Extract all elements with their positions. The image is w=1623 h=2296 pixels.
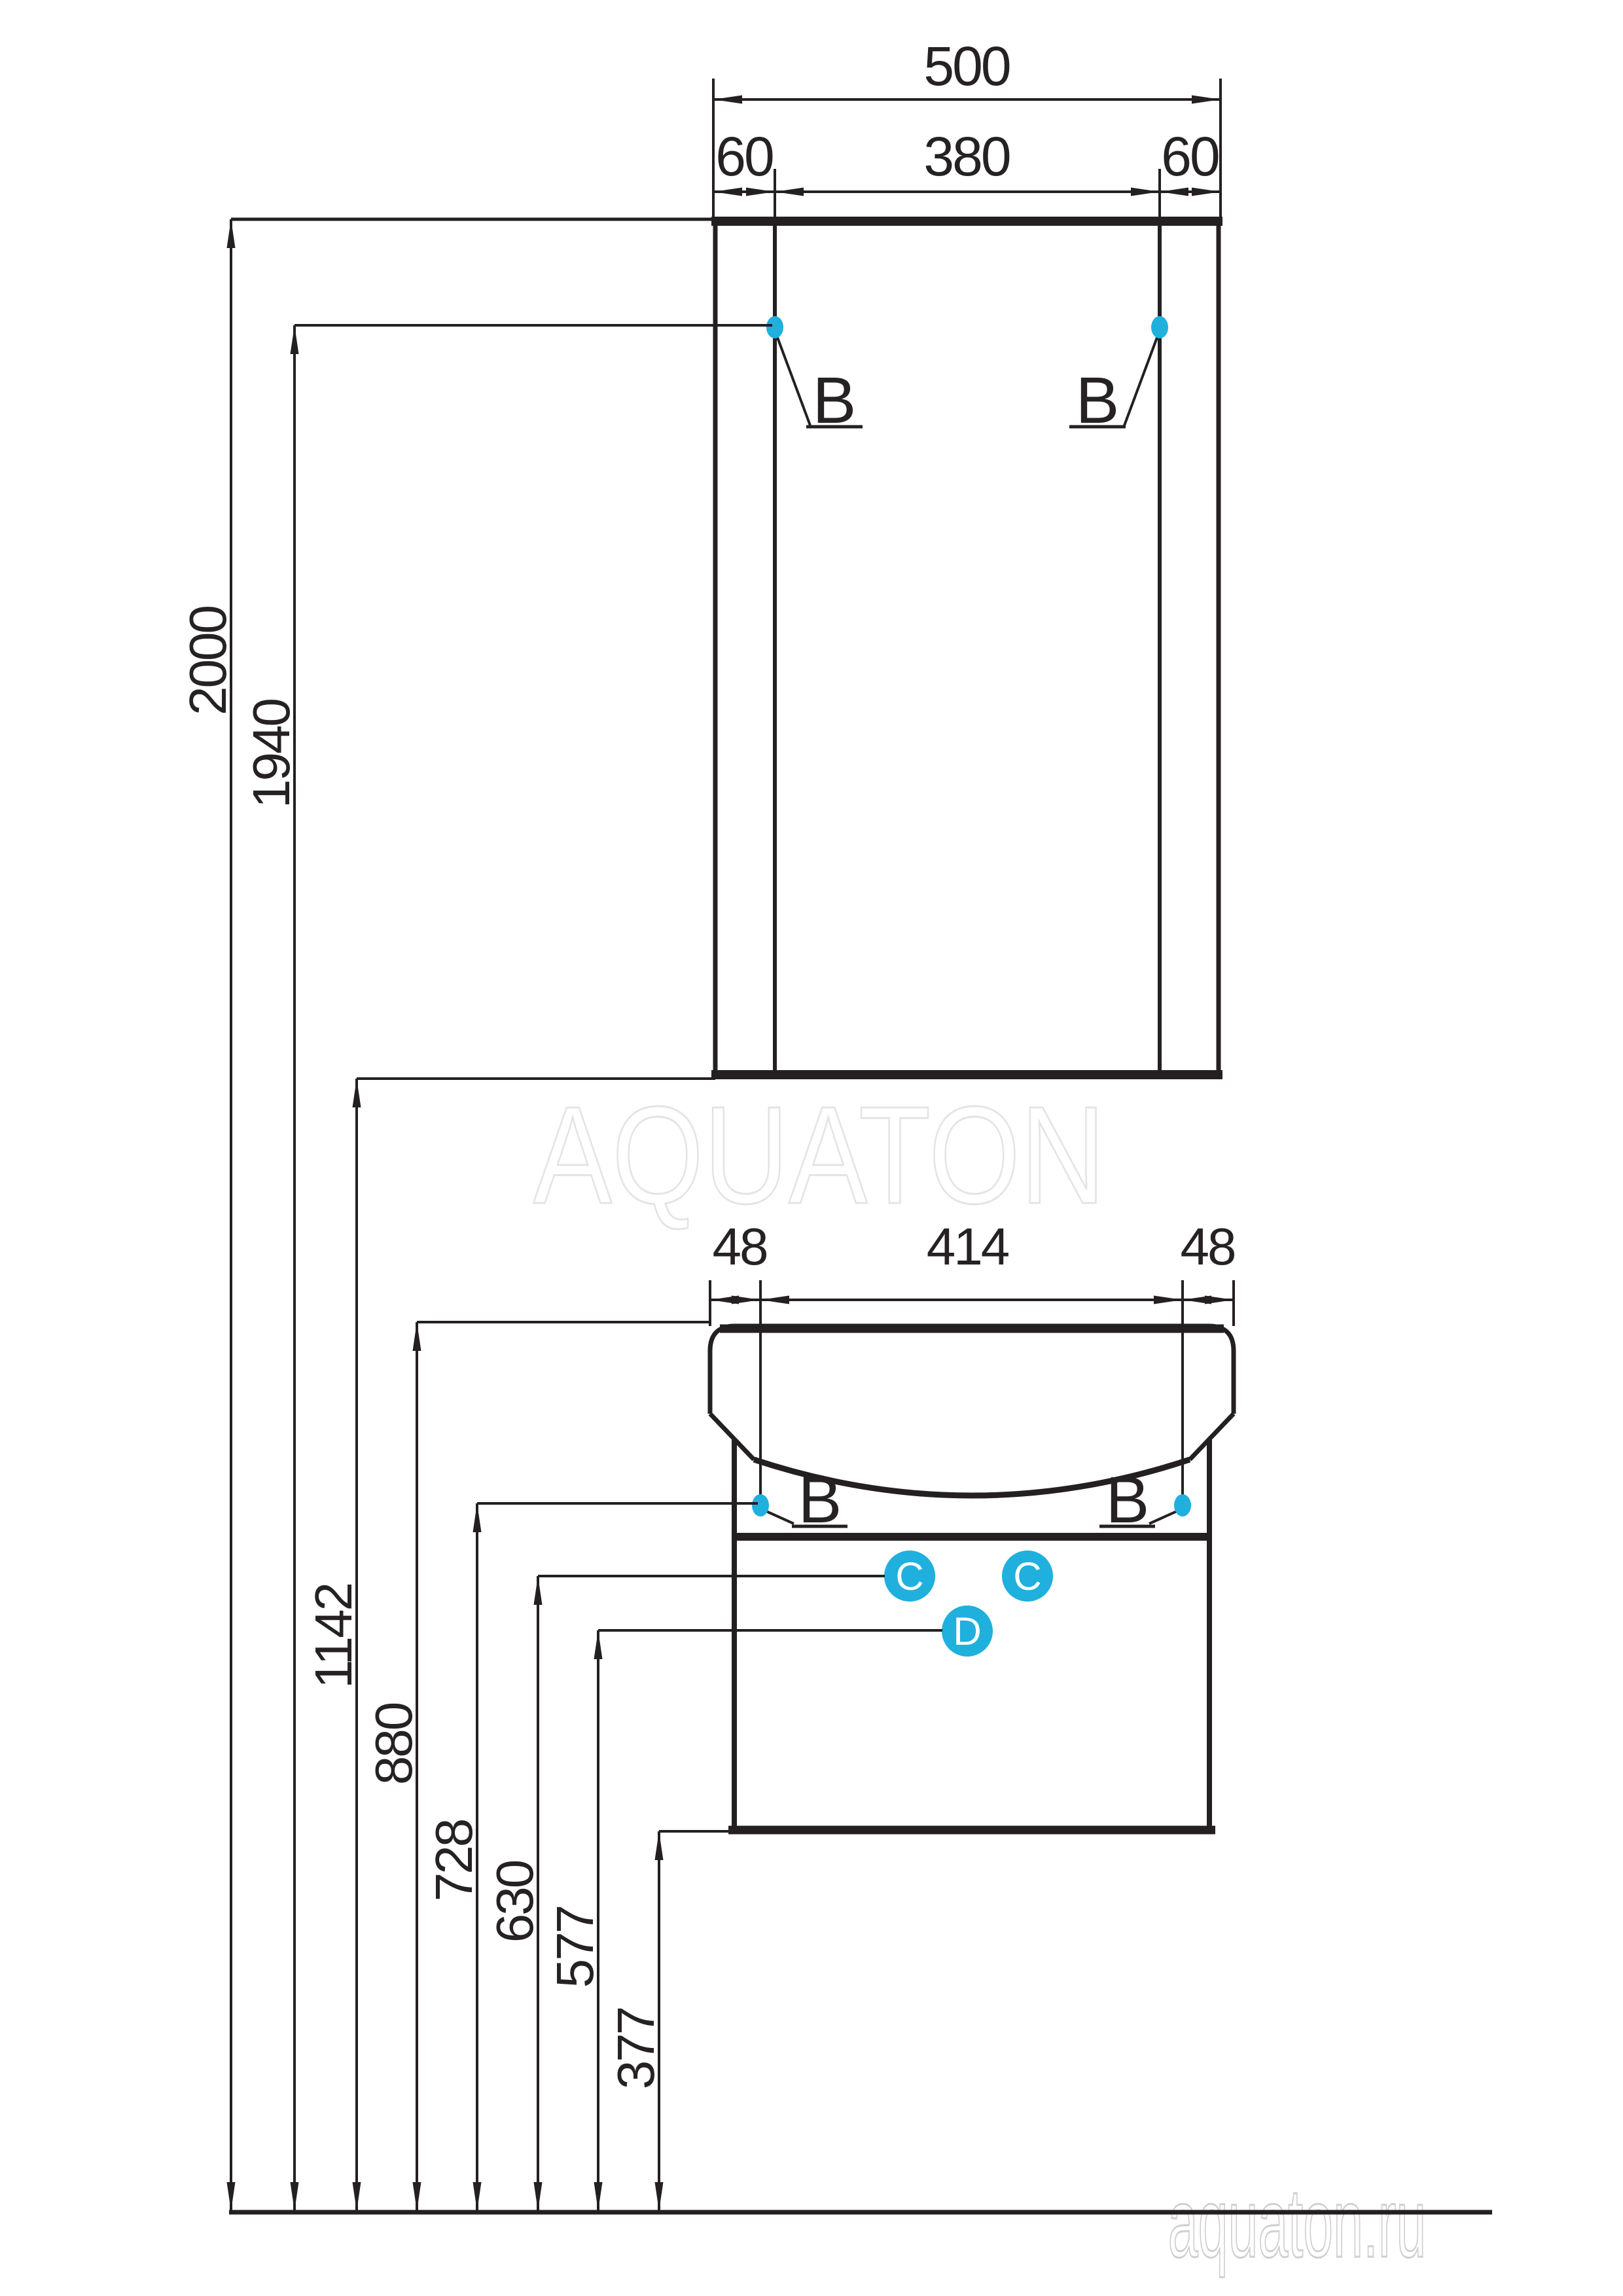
dim-height-2000: 2000 — [179, 607, 237, 715]
dim-height-577: 577 — [546, 1907, 604, 1988]
mirror-fixing-points: B B — [766, 316, 1168, 437]
fixing-label-right: B — [1076, 364, 1120, 437]
fixing-label-left: B — [813, 364, 857, 437]
dim-mirror-right-offset: 60 — [1161, 126, 1219, 187]
arrowhead — [227, 2182, 236, 2211]
arrowhead — [655, 2182, 664, 2211]
arrowhead — [1192, 188, 1221, 196]
fixing-point-dot-right — [1174, 1494, 1191, 1516]
dim-vanity-right-offset: 48 — [1181, 1217, 1235, 1276]
arrowhead — [227, 219, 236, 248]
dim-height-728: 728 — [425, 1820, 483, 1901]
leader-line — [775, 331, 810, 425]
arrowhead — [732, 1296, 760, 1304]
dim-height-1940: 1940 — [242, 700, 300, 808]
arrowhead — [655, 1831, 664, 1860]
dim-height-1142: 1142 — [304, 1584, 363, 1689]
dim-mirror-left-offset: 60 — [715, 126, 773, 187]
arrowhead — [291, 2182, 299, 2211]
arrowhead — [1160, 188, 1188, 196]
mirror-cabinet-outline — [715, 221, 1219, 1075]
installation-diagram: AQUATON aquaton.ru 500 60 380 60 — [0, 0, 1623, 2296]
mirror-cabinet — [711, 221, 1222, 1075]
watermark-logo: AQUATON — [533, 1077, 1105, 1232]
leader-line — [1124, 331, 1160, 425]
fixing-point-dot-left — [752, 1494, 769, 1516]
vanity-width-dimensions: 48 414 48 — [710, 1217, 1235, 1504]
arrowhead — [594, 1630, 603, 1659]
dim-mirror-total-width: 500 — [923, 35, 1009, 97]
arrowhead — [775, 188, 804, 196]
vanity-fixing-points: B B — [752, 1463, 1191, 1537]
arrowhead — [1192, 96, 1221, 104]
arrowhead — [291, 325, 299, 354]
arrowhead — [713, 188, 742, 196]
hole-label-c1: C — [895, 1554, 923, 1598]
fixing-point-dot-left — [766, 316, 783, 338]
arrowhead — [413, 1322, 421, 1351]
arrowhead — [473, 2182, 482, 2211]
dim-height-880: 880 — [365, 1703, 423, 1785]
fixing-label-left: B — [798, 1463, 842, 1537]
arrowhead — [534, 1576, 543, 1605]
arrowhead — [760, 1296, 789, 1304]
hole-markers: C C D — [884, 1551, 1053, 1657]
arrowhead — [1131, 188, 1160, 196]
arrowhead — [353, 2182, 361, 2211]
dim-mirror-center-width: 380 — [923, 126, 1009, 187]
mirror-width-dimensions: 500 60 380 60 — [713, 35, 1221, 219]
arrowhead — [413, 2182, 421, 2211]
arrowhead — [353, 1079, 361, 1107]
arrowhead — [473, 1503, 482, 1532]
hole-label-d: D — [953, 1609, 981, 1653]
washbasin — [710, 1326, 1234, 1496]
site-watermark: aquaton.ru — [1168, 2168, 1426, 2278]
site-url-text: aquaton.ru — [1168, 2168, 1426, 2278]
dim-vanity-left-offset: 48 — [713, 1217, 767, 1276]
hole-label-c2: C — [1013, 1554, 1041, 1598]
watermark-text: AQUATON — [533, 1077, 1105, 1232]
arrowhead — [1154, 1296, 1183, 1304]
arrowhead — [534, 2182, 543, 2211]
fixing-point-dot-right — [1151, 316, 1168, 338]
dim-height-377: 377 — [607, 2008, 665, 2089]
fixing-label-right: B — [1106, 1463, 1150, 1537]
arrowhead — [746, 188, 775, 196]
dim-vanity-center-width: 414 — [927, 1217, 1009, 1276]
arrowhead — [594, 2182, 603, 2211]
washbasin-outline — [710, 1326, 1234, 1414]
arrowhead — [713, 96, 742, 104]
dim-height-630: 630 — [486, 1861, 544, 1943]
arrowhead — [1205, 1296, 1234, 1304]
drawing-page: AQUATON aquaton.ru 500 60 380 60 — [0, 0, 1623, 2296]
